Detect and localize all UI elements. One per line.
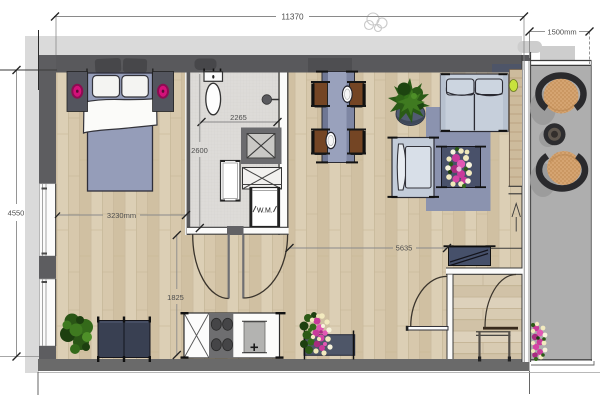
- svg-text:1825: 1825: [167, 293, 184, 302]
- svg-text:2600: 2600: [191, 146, 208, 155]
- svg-text:3230mm: 3230mm: [107, 211, 136, 220]
- svg-text:W.M.: W.M.: [257, 208, 273, 215]
- svg-text:2265: 2265: [230, 113, 247, 122]
- svg-text:5635: 5635: [396, 244, 413, 253]
- svg-text:11370: 11370: [281, 13, 304, 22]
- svg-text:1500mm: 1500mm: [547, 28, 576, 37]
- svg-text:4550: 4550: [8, 209, 25, 218]
